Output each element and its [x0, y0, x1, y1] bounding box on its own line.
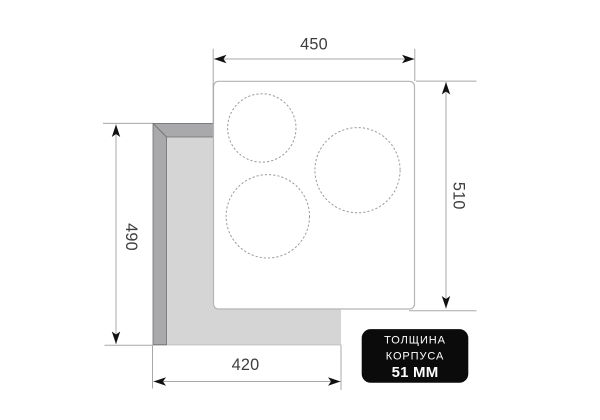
svg-text:490: 490	[122, 223, 140, 251]
svg-text:450: 450	[300, 36, 328, 54]
svg-text:51 ММ: 51 ММ	[392, 364, 439, 381]
svg-text:420: 420	[232, 356, 260, 374]
svg-text:КОРПУСА: КОРПУСА	[386, 351, 444, 363]
svg-text:510: 510	[449, 182, 467, 210]
svg-text:ТОЛЩИНА: ТОЛЩИНА	[384, 335, 446, 347]
